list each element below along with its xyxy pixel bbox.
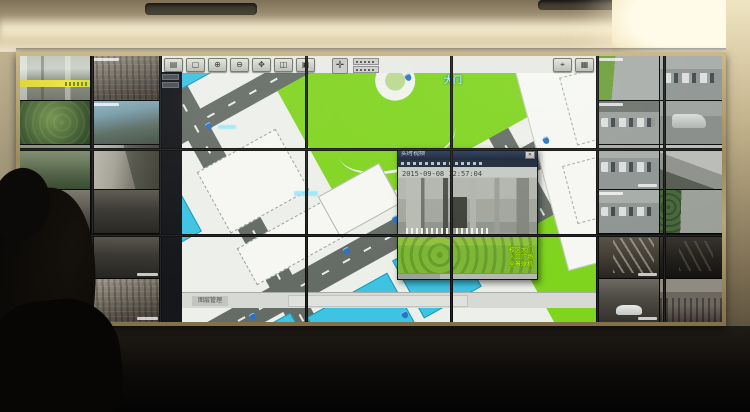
map-tool-bookmark-button[interactable]: ▢ xyxy=(186,58,205,72)
map-building xyxy=(182,193,202,261)
map-text-label xyxy=(218,125,236,129)
map-status-text[interactable]: 图层管理 xyxy=(192,296,228,306)
camera-feed-streetcars[interactable] xyxy=(597,190,659,234)
camera-osd-text xyxy=(638,317,657,320)
video-timestamp: 2015-09-08 12:57:04 xyxy=(402,170,482,178)
ceiling-vent xyxy=(145,3,257,15)
map-toolbar: ▤▢⊕⊖✥◫▣ xyxy=(164,58,315,72)
camera-feed-alleycar[interactable] xyxy=(597,279,659,323)
camera-feed-streetcars[interactable] xyxy=(660,56,722,100)
monitor-bezel xyxy=(663,56,666,322)
popup-close-button[interactable]: ✕ xyxy=(525,151,535,159)
camera-feed-parking[interactable] xyxy=(597,101,659,145)
camera-feed-hedge[interactable] xyxy=(660,190,722,234)
camera-feed-blueroof[interactable] xyxy=(91,101,161,145)
video-wall: 大门 ▤▢⊕⊖✥◫▣ ✛ ⌖▦ 图层管理 实时视频 xyxy=(20,56,722,322)
camera-osd-text xyxy=(638,273,657,276)
right-camera-grid xyxy=(597,56,722,322)
map-tool-locate-button[interactable]: ⌖ xyxy=(553,58,572,72)
camera-feed-roofgrey[interactable] xyxy=(660,145,722,189)
gate-doorway xyxy=(451,197,468,229)
camera-feed-lane[interactable] xyxy=(20,279,90,323)
camera-feed-vanlot[interactable] xyxy=(660,101,722,145)
left-camera-grid xyxy=(20,56,160,322)
map-tool-layers-button[interactable]: ▤ xyxy=(164,58,183,72)
left-wall xyxy=(0,52,16,328)
camera-feed-courtyard[interactable] xyxy=(20,145,90,189)
camera-feed-foliage[interactable] xyxy=(20,101,90,145)
camera-feed-gate[interactable] xyxy=(20,56,90,100)
monitor-bezel xyxy=(91,56,94,322)
map-tool-pan-button[interactable]: ✥ xyxy=(252,58,271,72)
map-tool-measure-button[interactable]: ◫ xyxy=(274,58,293,72)
map-tool-overview-button[interactable]: ▦ xyxy=(575,58,594,72)
camera-feed-stairs[interactable] xyxy=(597,234,659,278)
camera-osd-text xyxy=(137,317,158,320)
camera-feed-oldtown[interactable] xyxy=(91,56,161,100)
camera-feed-stairsdark[interactable] xyxy=(660,234,722,278)
map-readout-chip xyxy=(353,58,379,65)
camera-feed-oldtown[interactable] xyxy=(91,279,161,323)
camera-osd-label: 校区大门 入口广场 全景球机 xyxy=(509,248,533,269)
camera-osd-text xyxy=(93,58,119,61)
camera-osd-text xyxy=(599,103,623,106)
gate-building xyxy=(406,178,528,235)
monitor-bezel xyxy=(159,56,162,322)
popup-progress-bar[interactable] xyxy=(398,273,537,279)
popup-video: 2015-09-08 12:57:04 校区大门 入口广场 全景球机 xyxy=(398,167,537,273)
live-video-popup[interactable]: 实时视频 ✕ 2015-09-08 12:57:04 校区大门 入口广场 xyxy=(397,148,538,280)
floor-shadow xyxy=(0,326,750,412)
camera-osd-text xyxy=(599,192,623,195)
map-tool-zoom-out-button[interactable]: ⊖ xyxy=(230,58,249,72)
camera-feed-whitecar[interactable] xyxy=(20,234,90,278)
camera-feed-balcony[interactable] xyxy=(660,279,722,323)
camera-osd-text xyxy=(599,58,623,61)
map-readout-chips xyxy=(353,58,379,73)
monitor-bezel xyxy=(450,56,453,322)
video-wall-frame: 大门 ▤▢⊕⊖✥◫▣ ✛ ⌖▦ 图层管理 实时视频 xyxy=(16,52,726,326)
map-tool-zoom-in-button[interactable]: ⊕ xyxy=(208,58,227,72)
camera-feed-wallshade[interactable] xyxy=(91,145,161,189)
popup-title: 实时视频 xyxy=(398,151,525,158)
map-pan-dpad[interactable]: ✛ xyxy=(332,58,348,74)
monitor-bezel xyxy=(596,56,599,322)
camera-feed-alley[interactable] xyxy=(20,190,90,234)
camera-osd-text xyxy=(638,184,657,187)
gis-map-application[interactable]: 大门 ▤▢⊕⊖✥◫▣ ✛ ⌖▦ 图层管理 实时视频 xyxy=(160,56,597,322)
map-panel-chip[interactable] xyxy=(162,82,179,88)
monitor-bezel xyxy=(305,56,308,322)
camera-feed-garage[interactable] xyxy=(91,190,161,234)
control-room-photo: 大门 ▤▢⊕⊖✥◫▣ ✛ ⌖▦ 图层管理 实时视频 xyxy=(0,0,750,412)
gate-fence xyxy=(406,228,489,233)
map-gate-label: 大门 xyxy=(444,73,462,86)
popup-control-bar[interactable] xyxy=(398,160,537,167)
camera-feed-garage2[interactable] xyxy=(91,234,161,278)
camera-osd-text xyxy=(137,273,158,276)
map-status-bar: 图层管理 xyxy=(182,292,597,308)
monitor-bezel xyxy=(20,148,722,151)
map-panel-chip[interactable] xyxy=(162,74,179,80)
map-status-segment xyxy=(288,295,468,307)
camera-osd-text xyxy=(22,192,48,195)
map-toolbar-extra: ⌖▦ xyxy=(553,58,594,72)
map-readout-chip xyxy=(353,66,379,73)
map-side-panel[interactable] xyxy=(160,72,182,322)
camera-osd-band xyxy=(20,80,90,87)
camera-feed-verge[interactable] xyxy=(597,56,659,100)
camera-osd-text xyxy=(93,103,119,106)
monitor-bezel xyxy=(20,234,722,237)
camera-feed-lotcars[interactable] xyxy=(597,145,659,189)
